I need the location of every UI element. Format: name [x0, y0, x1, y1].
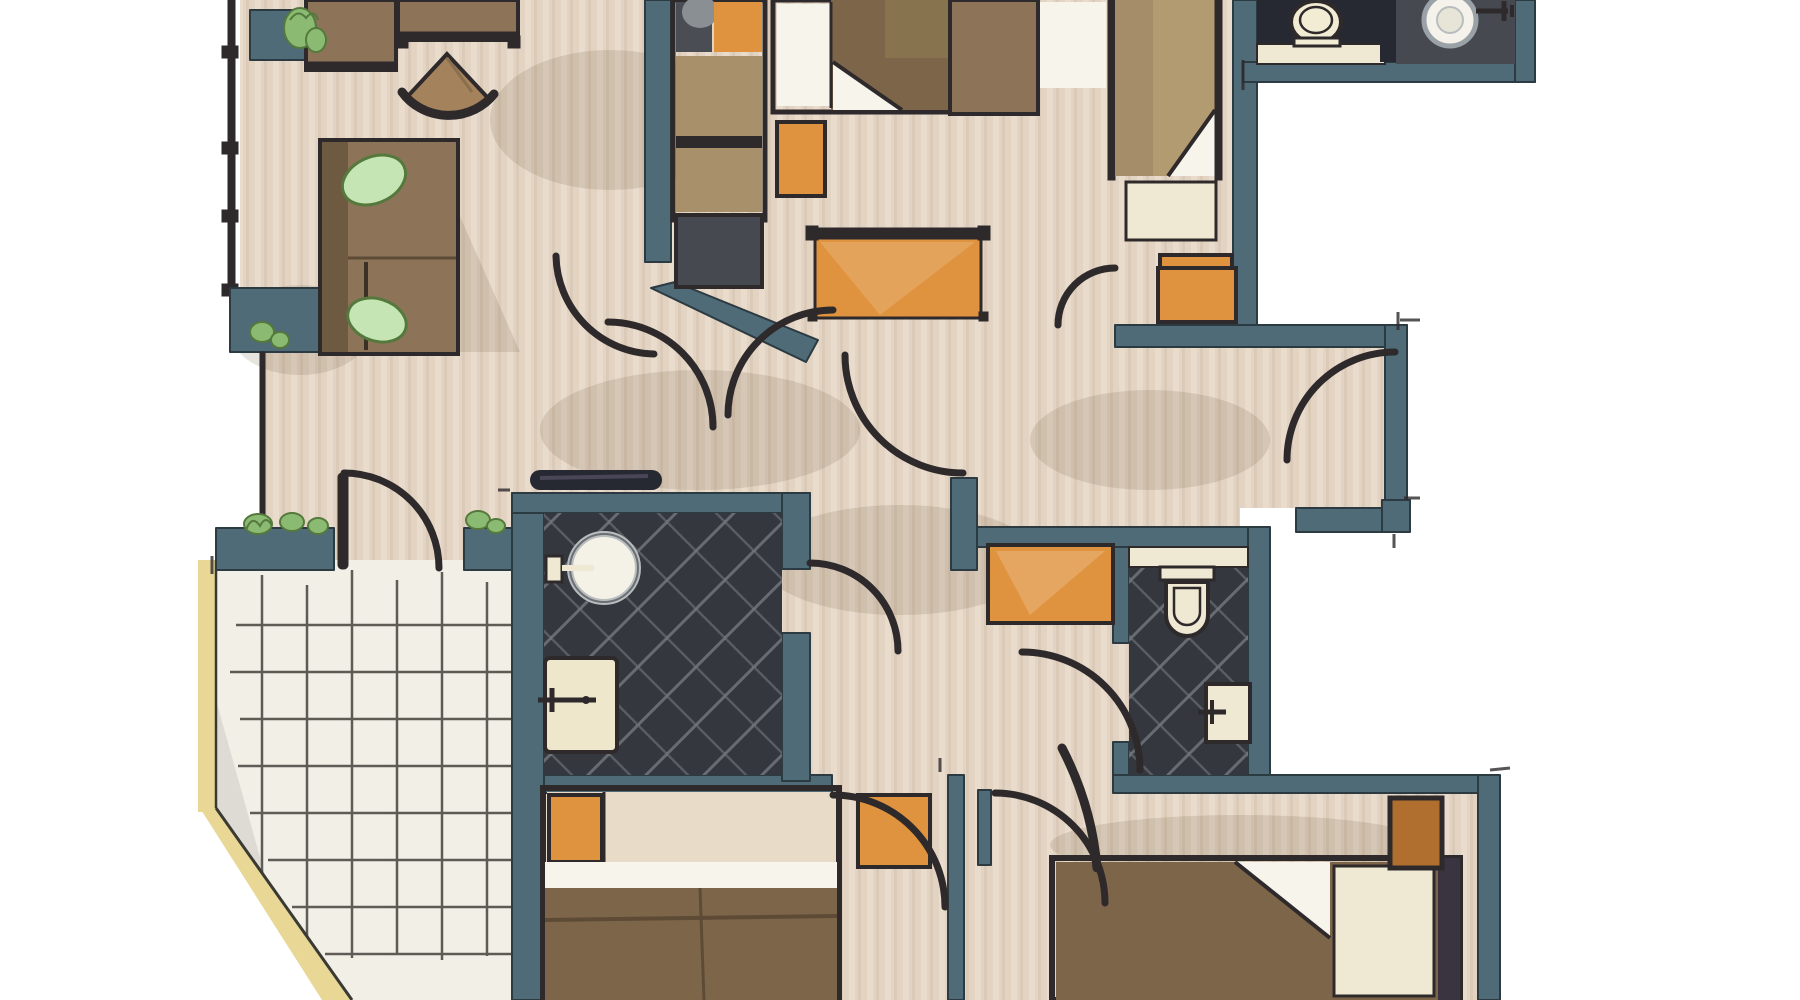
terrace [198, 560, 512, 1000]
wardrobe [673, 0, 765, 287]
shower-right-wall-lower [782, 633, 810, 781]
doorway-post [978, 790, 991, 865]
bottommiddle-right-wall [948, 775, 964, 1000]
railing-post [222, 46, 238, 58]
headboard [1438, 858, 1460, 1000]
single-bed [1108, 0, 1222, 180]
nightstand [777, 122, 825, 196]
middleright-top-wall [1115, 325, 1407, 347]
toilet-icon [1291, 1, 1341, 46]
blanket [545, 888, 837, 1000]
hall-wall-post [951, 478, 977, 570]
floor-plan-page [0, 0, 1800, 1000]
wc-left-wall-stub [1113, 742, 1129, 775]
toilet-icon [1160, 567, 1214, 636]
bottomright-right-wall [1478, 775, 1500, 1000]
console-table [396, 0, 520, 48]
bottomright-top-wall [1113, 775, 1480, 793]
cream-nightstand [1126, 182, 1216, 240]
pillow [777, 4, 831, 106]
bathtub-vanity-icon [538, 658, 617, 752]
orange-mat [1158, 268, 1236, 322]
wc-left-wall-upper [1113, 547, 1129, 643]
washbasin-icon [1198, 684, 1250, 742]
railing-post [222, 142, 238, 154]
pillow [1334, 866, 1434, 996]
double-bed [543, 788, 839, 1000]
double-bed [1052, 858, 1460, 1000]
wash [1030, 390, 1270, 490]
pillow [1040, 2, 1106, 88]
shower-room [530, 470, 782, 775]
orange-nightstand [1390, 798, 1442, 868]
wall-console [530, 470, 662, 490]
shower-left-wall [512, 493, 544, 1000]
ensuite-top-right [1257, 0, 1515, 64]
terrace-edge-band [198, 560, 216, 812]
double-bed [773, 0, 969, 112]
shower-top-wall [512, 493, 810, 513]
sheet-band [545, 862, 837, 888]
console-highlight [540, 476, 648, 478]
middleright-corner-nub [1382, 500, 1410, 532]
wardrobe-base [676, 215, 762, 287]
side-table [950, 0, 1038, 114]
shower-right-wall-upper [782, 493, 810, 569]
left-boundary-line [260, 352, 265, 530]
bedroom1-left-wall [645, 0, 671, 262]
ensuite-divider [1380, 0, 1396, 62]
sofa [320, 140, 458, 354]
orange-pillow [549, 795, 602, 862]
wc-counter [1129, 547, 1248, 567]
shower-drain-icon [1424, 0, 1476, 46]
floor-plan-canvas [0, 0, 1800, 1000]
ensuite-right-wall [1515, 0, 1535, 82]
railing-post [222, 210, 238, 222]
planter-shelf-right [464, 528, 512, 570]
